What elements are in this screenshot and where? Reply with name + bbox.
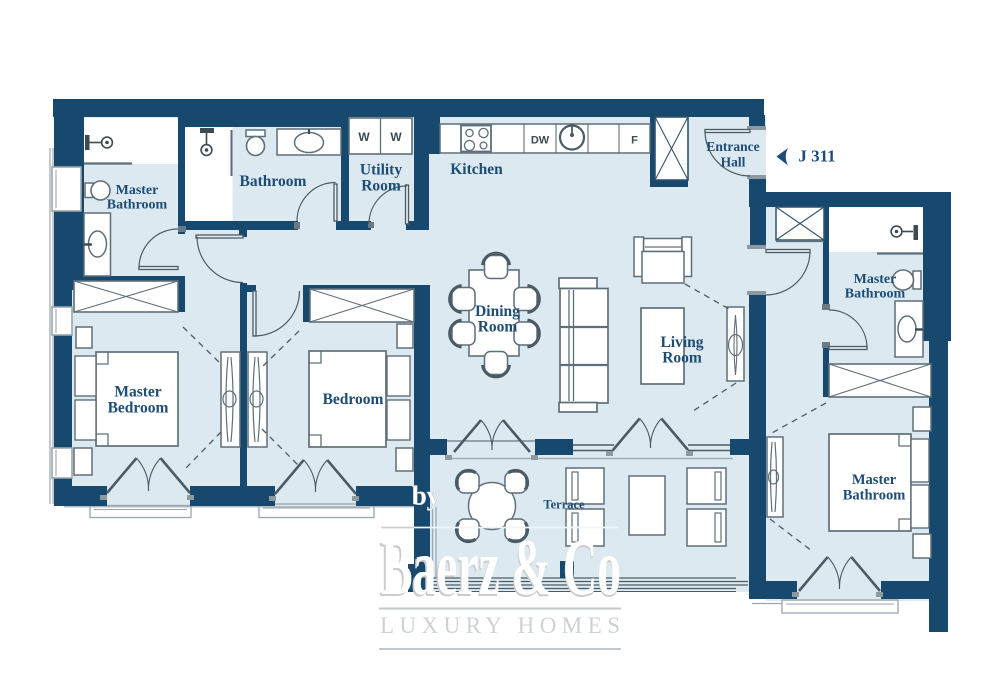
svg-text:Bathroom: Bathroom [240,173,307,190]
svg-text:Bathroom: Bathroom [845,287,906,302]
svg-text:Master: Master [854,272,897,287]
svg-text:W: W [358,130,370,144]
svg-text:Master: Master [114,384,161,401]
svg-text:Room: Room [478,319,518,336]
svg-text:Room: Room [662,350,702,367]
svg-text:Master: Master [116,183,159,198]
svg-text:Hall: Hall [721,155,746,170]
svg-text:Bedroom: Bedroom [108,400,169,417]
svg-text:Bathroom: Bathroom [107,198,168,213]
svg-text:F: F [631,135,638,147]
svg-text:Baerz & Co: Baerz & Co [381,524,621,612]
svg-text:J 311: J 311 [798,147,835,166]
svg-text:Living: Living [660,334,703,351]
svg-text:Master: Master [852,472,897,488]
svg-text:Kitchen: Kitchen [450,161,503,178]
svg-text:Room: Room [361,178,401,195]
svg-text:W: W [390,130,402,144]
svg-text:Dining: Dining [475,303,520,320]
svg-text:Terrace: Terrace [543,498,585,512]
svg-text:Bedroom: Bedroom [323,391,384,408]
svg-text:Utility: Utility [360,162,402,179]
svg-text:Bathroom: Bathroom [843,488,906,504]
svg-text:Entrance: Entrance [706,139,759,154]
svg-text:DW: DW [531,135,550,147]
svg-text:by: by [412,481,441,511]
